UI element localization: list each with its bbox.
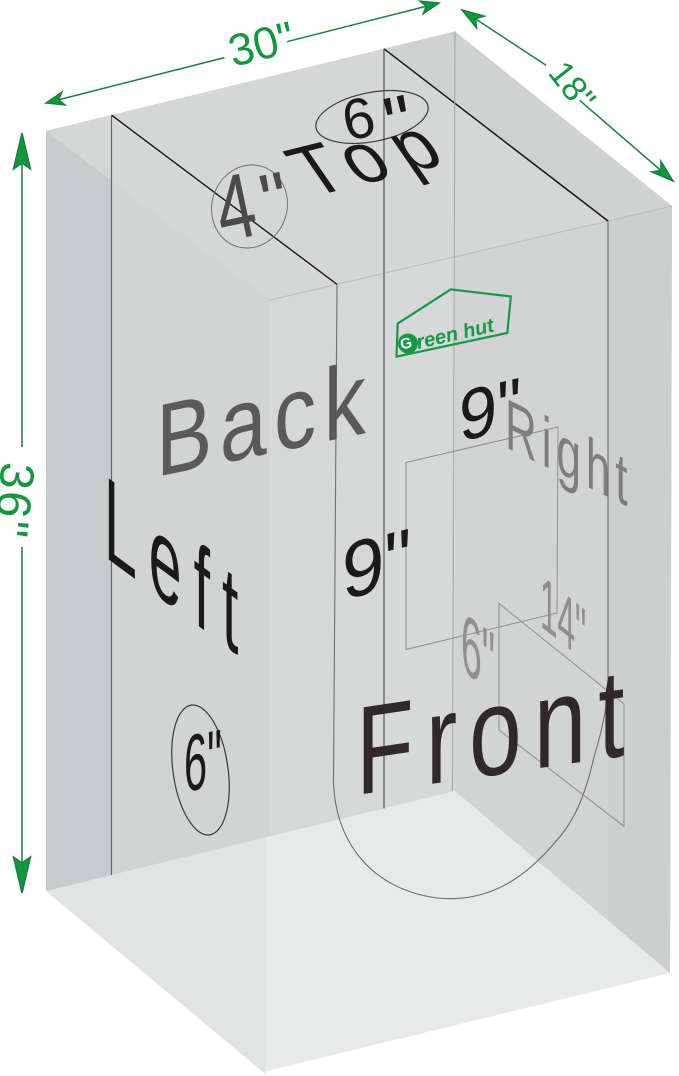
svg-text:9": 9" <box>342 510 411 617</box>
svg-text:6": 6" <box>184 712 222 809</box>
svg-text:9": 9" <box>459 363 521 458</box>
svg-text:36": 36" <box>0 460 44 542</box>
